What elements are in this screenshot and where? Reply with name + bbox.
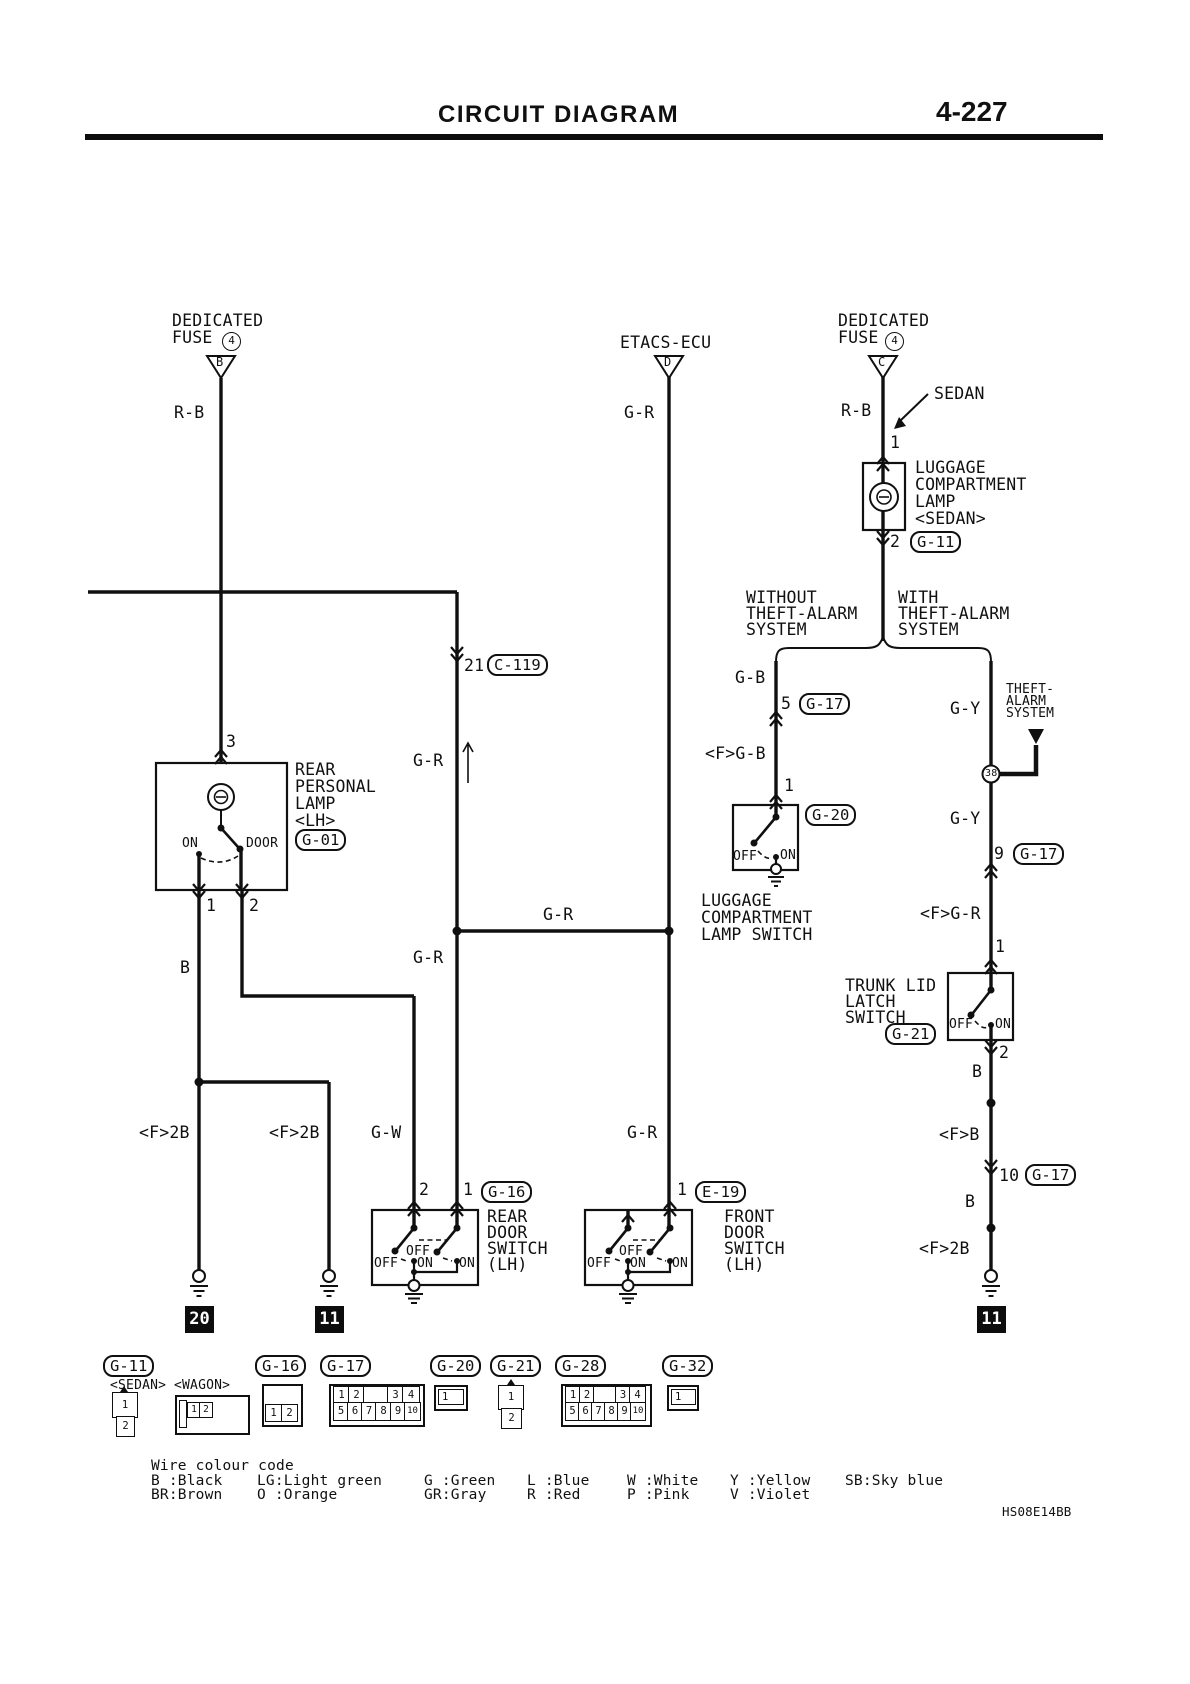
luggage-lamp-name-4: <SEDAN>: [915, 510, 986, 527]
luggage-switch-pin-1: 1: [784, 777, 794, 794]
luggage-switch-off: OFF: [733, 850, 757, 863]
luggage-switch-name-1: LUGGAGE: [701, 892, 772, 909]
connector-ref-g17-b: G-17: [1013, 843, 1064, 865]
connector-ref-g17-c: G-17: [1025, 1164, 1076, 1186]
legend-g32-pin-1: 1: [671, 1389, 696, 1405]
wires: [88, 356, 1044, 1411]
fuse-right-name-2: FUSE: [838, 329, 879, 346]
rear-lamp-name-2: PERSONAL: [295, 778, 376, 795]
etacs-terminal: D: [664, 356, 671, 368]
connector-ref-g20: G-20: [805, 804, 856, 826]
luggage-lamp-name-1: LUGGAGE: [915, 459, 986, 476]
luggage-lamp-name-2: COMPARTMENT: [915, 476, 1026, 493]
wire-label-gy-1: G-Y: [950, 700, 980, 717]
legend-g16-pin-1: 1: [265, 1404, 282, 1422]
legend-ref-g20: G-20: [430, 1355, 481, 1377]
legend-g21-pin-1: 1: [498, 1385, 524, 1410]
g17-pin-9: 9: [994, 845, 1004, 862]
wire-label-b-left: B: [180, 959, 190, 976]
legend-g11-sedan-pin-1: 1: [112, 1392, 138, 1418]
legend-g11-sedan: <SEDAN>: [110, 1379, 166, 1392]
legend-ref-g16: G-16: [255, 1355, 306, 1377]
switch-dashes: [201, 851, 987, 1262]
ground-ref-20: 20: [185, 1306, 214, 1333]
legend-g11-wagon: <WAGON>: [174, 1379, 230, 1392]
luggage-switch-on: ON: [780, 849, 796, 862]
branch-with-3: SYSTEM: [898, 621, 959, 638]
wire-label-gr-down: G-R: [413, 949, 443, 966]
c119-pin-21: 21: [464, 657, 484, 674]
ground-ref-11-right: 11: [977, 1306, 1006, 1333]
wire-label-gb: G-B: [735, 669, 765, 686]
rear-door-pin-1: 1: [463, 1181, 473, 1198]
switch-arms: [221, 817, 991, 1250]
wire-colour-code-title: Wire colour code: [151, 1459, 294, 1473]
wire-label-gr-etacs: G-R: [624, 404, 654, 421]
luggage-switch-name-2: COMPARTMENT: [701, 909, 812, 926]
fuse-left-name-1: DEDICATED: [172, 312, 263, 329]
front-door-on-b: ON: [672, 1257, 688, 1270]
luggage-switch-name-3: LAMP SWITCH: [701, 926, 812, 943]
wire-label-b-trunk-1: B: [972, 1063, 982, 1080]
rear-lamp-pos-on: ON: [182, 837, 198, 850]
theft-alarm-tag-3: SYSTEM: [1006, 708, 1054, 720]
luggage-lamp-pin-1: 1: [890, 434, 900, 451]
wire-label-rb-right: R-B: [841, 402, 871, 419]
front-door-on-a: ON: [630, 1257, 646, 1270]
wire-label-gw: G-W: [371, 1124, 401, 1141]
legend-ref-g21: G-21: [490, 1355, 541, 1377]
legend-ref-g11: G-11: [103, 1355, 154, 1377]
wire-label-f-gr: <F>G-R: [920, 905, 981, 922]
rear-lamp-pos-door: DOOR: [246, 837, 278, 850]
rear-lamp-pin-2: 2: [249, 897, 259, 914]
trunk-switch-pin-1: 1: [995, 938, 1005, 955]
wire-label-f-gb: <F>G-B: [705, 745, 766, 762]
legend-g11-wagon-pin-2: 2: [199, 1402, 213, 1418]
rear-door-name-4: (LH): [487, 1256, 528, 1273]
fuse-right-name-1: DEDICATED: [838, 312, 929, 329]
colour-code-entry: O :Orange: [257, 1488, 337, 1502]
doc-code: HS08E14BB: [1002, 1505, 1072, 1518]
connector-ref-g21: G-21: [885, 1023, 936, 1045]
rear-door-on-b: ON: [459, 1257, 475, 1270]
front-door-name-4: (LH): [724, 1256, 765, 1273]
legend-ref-g17: G-17: [320, 1355, 371, 1377]
trunk-switch-off: OFF: [949, 1018, 973, 1031]
colour-code-entry: G :Green: [424, 1474, 495, 1488]
colour-code-entry: SB:Sky blue: [845, 1474, 943, 1488]
wire-label-f2b-b: <F>2B: [269, 1124, 320, 1141]
etacs-ecu-label: ETACS-ECU: [620, 334, 711, 351]
connector-ref-g17-a: G-17: [799, 693, 850, 715]
fuse-right-number-icon: 4: [885, 332, 904, 351]
rear-lamp-name-1: REAR: [295, 761, 336, 778]
legend-g11-sedan-pin-2: 2: [116, 1416, 135, 1437]
splice-38-number: 38: [985, 769, 997, 779]
g17-pin-10: 10: [999, 1167, 1019, 1184]
colour-code-entry: W :White: [627, 1474, 698, 1488]
colour-code-entry: P :Pink: [627, 1488, 690, 1502]
trunk-switch-on: ON: [995, 1018, 1011, 1031]
connector-ref-g11: G-11: [910, 531, 961, 553]
rear-lamp-name-4: <LH>: [295, 812, 336, 829]
front-door-off-a: OFF: [587, 1257, 611, 1270]
wire-label-b-trunk-2: B: [965, 1193, 975, 1210]
wire-label-gr-link: G-R: [543, 906, 573, 923]
manual-page: CIRCUIT DIAGRAM 4-227 DEDICATED FUSE 4 B…: [0, 0, 1190, 1684]
colour-code-entry: Y :Yellow: [730, 1474, 810, 1488]
legend-g21-pin-2: 2: [501, 1408, 522, 1429]
front-door-pin-1: 1: [677, 1181, 687, 1198]
wire-label-rb-left: R-B: [174, 404, 204, 421]
rear-door-pin-2: 2: [419, 1181, 429, 1198]
ground-ref-11-left: 11: [315, 1306, 344, 1333]
luggage-lamp-name-3: LAMP: [915, 493, 956, 510]
wire-label-gy-2: G-Y: [950, 810, 980, 827]
fuse-left-terminal: B: [216, 356, 223, 368]
legend-g17-pin: 10: [404, 1402, 421, 1421]
rear-lamp-pin-1: 1: [206, 897, 216, 914]
g17-pin-5: 5: [781, 695, 791, 712]
connector-ref-c119: C-119: [487, 654, 548, 676]
colour-code-entry: GR:Gray: [424, 1488, 487, 1502]
variant-note-sedan: SEDAN: [934, 385, 985, 402]
connector-ref-g01: G-01: [295, 829, 346, 851]
legend-g28-pin: 10: [630, 1402, 646, 1421]
rear-lamp-name-3: LAMP: [295, 795, 336, 812]
wire-label-f2b-a: <F>2B: [139, 1124, 190, 1141]
fuse-left-name-2: FUSE: [172, 329, 213, 346]
earth-symbol-icons: [190, 877, 1000, 1303]
wire-label-gr-up: G-R: [413, 752, 443, 769]
colour-code-entry: L :Blue: [527, 1474, 590, 1488]
legend-g11-wagon-bar: [179, 1400, 187, 1428]
colour-code-entry: R :Red: [527, 1488, 581, 1502]
branch-without-3: SYSTEM: [746, 621, 807, 638]
wire-label-f-b: <F>B: [939, 1126, 980, 1143]
rear-door-off-a: OFF: [374, 1257, 398, 1270]
luggage-lamp-pin-2: 2: [890, 533, 900, 550]
legend-g20-pin-1: 1: [438, 1389, 464, 1405]
contact-dots: [195, 814, 996, 1276]
rear-door-on-a: ON: [417, 1257, 433, 1270]
wire-label-gr-front: G-R: [627, 1124, 657, 1141]
connector-ref-g16: G-16: [481, 1181, 532, 1203]
colour-code-entry: B :Black: [151, 1474, 222, 1488]
legend-ref-g28: G-28: [555, 1355, 606, 1377]
colour-code-entry: BR:Brown: [151, 1488, 222, 1502]
fuse-left-number-icon: 4: [222, 332, 241, 351]
wire-label-f2b-right: <F>2B: [919, 1240, 970, 1257]
colour-code-entry: V :Violet: [730, 1488, 810, 1502]
legend-g16-pin-2: 2: [281, 1404, 298, 1422]
header-rule: [85, 134, 1103, 140]
connector-ref-e19: E-19: [695, 1181, 746, 1203]
colour-code-entry: LG:Light green: [257, 1474, 382, 1488]
rear-lamp-pin-3: 3: [226, 733, 236, 750]
ground-circle-icons: [193, 864, 997, 1291]
fuse-right-terminal: C: [878, 356, 885, 368]
trunk-switch-pin-2: 2: [999, 1044, 1009, 1061]
page-title: CIRCUIT DIAGRAM: [438, 101, 679, 129]
page-number: 4-227: [936, 96, 1008, 128]
terminal-triangle-icons: [207, 356, 897, 378]
legend-ref-g32: G-32: [662, 1355, 713, 1377]
